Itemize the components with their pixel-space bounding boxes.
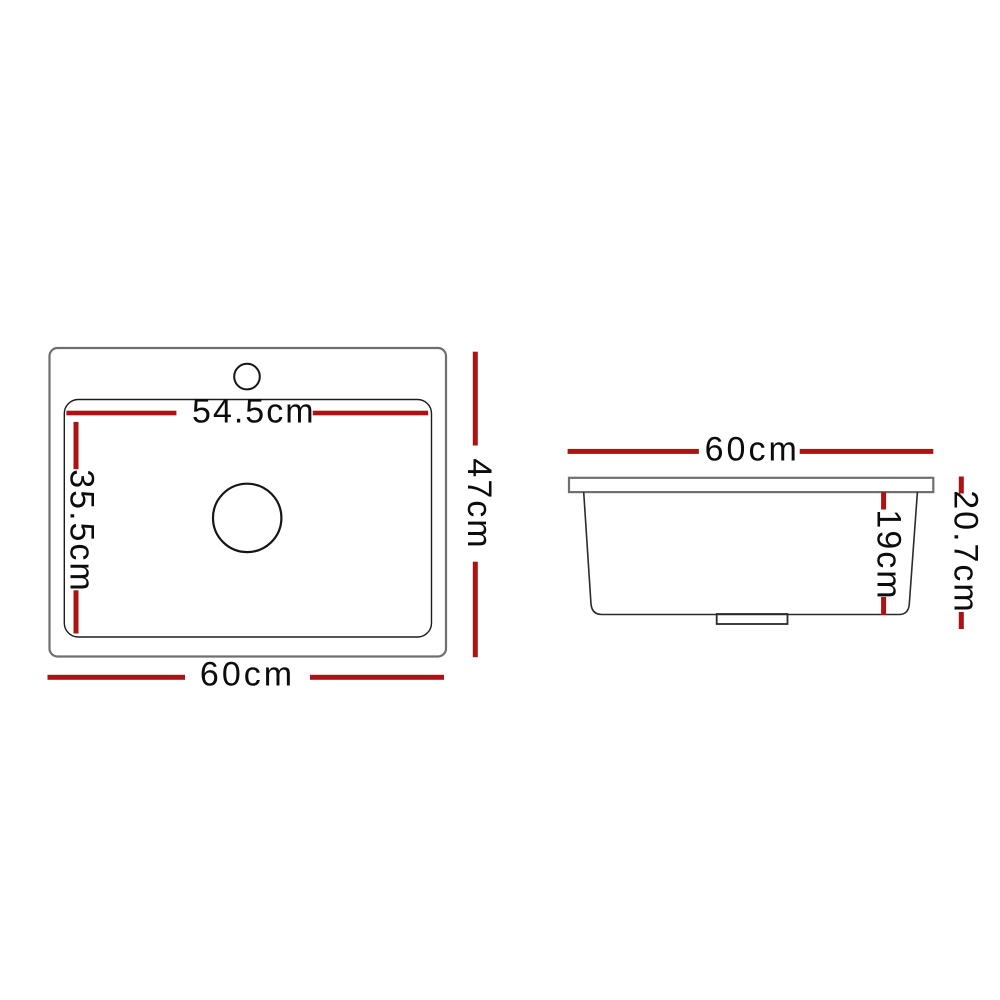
svg-text:54.5cm: 54.5cm [192, 392, 316, 430]
svg-text:35.5cm: 35.5cm [62, 469, 100, 593]
svg-text:47cm: 47cm [460, 458, 498, 549]
svg-text:20.7cm: 20.7cm [946, 490, 984, 614]
svg-text:19cm: 19cm [870, 509, 908, 600]
svg-text:60cm: 60cm [705, 431, 800, 469]
svg-text:60cm: 60cm [200, 655, 295, 693]
